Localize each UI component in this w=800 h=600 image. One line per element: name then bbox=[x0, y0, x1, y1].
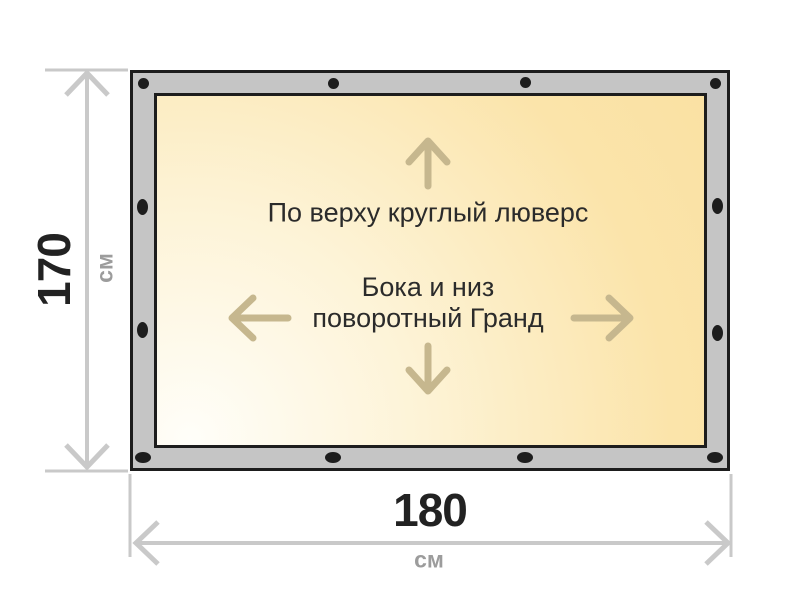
grommet-icon bbox=[710, 78, 721, 89]
height-unit: см bbox=[92, 253, 119, 283]
grommet-icon bbox=[137, 322, 148, 338]
width-value: 180 bbox=[393, 483, 467, 537]
width-unit: см bbox=[414, 547, 444, 574]
sides-bottom-label-line1: Бока и низ bbox=[312, 272, 543, 303]
grommet-icon bbox=[138, 78, 149, 89]
grommet-icon bbox=[328, 78, 339, 89]
grommet-icon bbox=[712, 325, 723, 341]
grommet-icon bbox=[135, 452, 151, 463]
grommet-icon bbox=[520, 77, 531, 88]
grommet-icon bbox=[712, 198, 723, 214]
height-value: 170 bbox=[27, 233, 81, 307]
grommet-icon bbox=[137, 199, 148, 215]
banner-size-diagram: По верху круглый люверс Бока и низ повор… bbox=[0, 0, 800, 600]
grommet-icon bbox=[517, 452, 533, 463]
sides-bottom-label: Бока и низ поворотный Гранд bbox=[312, 272, 543, 334]
grommet-icon bbox=[325, 452, 341, 463]
sides-bottom-label-line2: поворотный Гранд bbox=[312, 303, 543, 334]
banner-fabric bbox=[154, 93, 707, 448]
top-grommet-label: По верху круглый люверс bbox=[268, 198, 589, 229]
grommet-icon bbox=[707, 452, 723, 463]
